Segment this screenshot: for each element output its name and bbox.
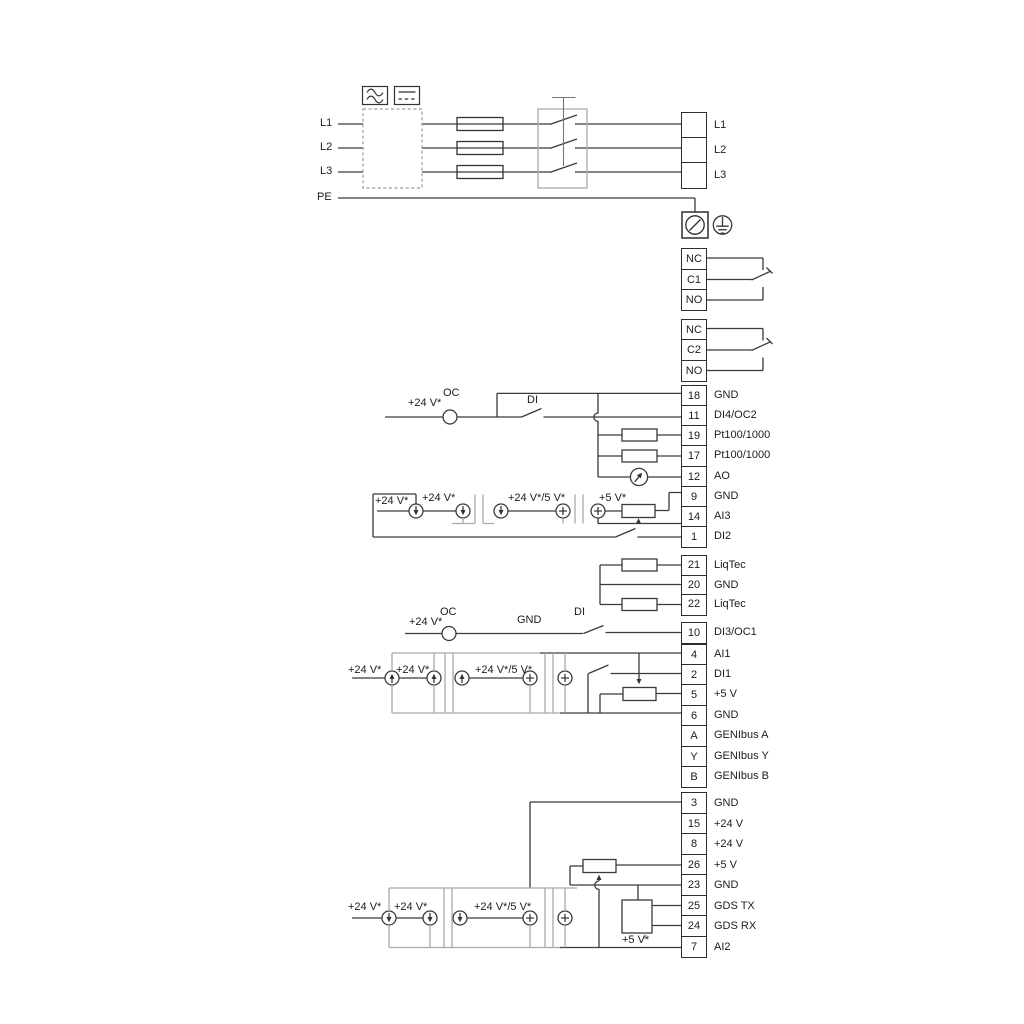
terminal-label: LiqTec bbox=[714, 555, 746, 575]
terminal-cell-12: 12 bbox=[681, 466, 707, 488]
option-brackets bbox=[392, 653, 565, 713]
resistor-icon bbox=[622, 429, 657, 441]
main-switch-linkage bbox=[552, 98, 576, 167]
terminal-cell-17: 17 bbox=[681, 445, 707, 467]
current-source-icon bbox=[455, 671, 469, 685]
open-collector-icon bbox=[442, 627, 456, 641]
wire-label-ai3-24v-1: +24 V* bbox=[375, 495, 408, 507]
terminal-cell-20: 20 bbox=[681, 575, 707, 596]
terminal-cell-18: 18 bbox=[681, 385, 707, 407]
terminal-label: GND bbox=[714, 705, 738, 725]
terminal-cell-NC: NC bbox=[681, 248, 707, 270]
terminal-cell-NO: NO bbox=[681, 360, 707, 382]
wire-label-ai2-24v5v: +24 V*/5 V* bbox=[474, 901, 531, 913]
terminal-cell-Y: Y bbox=[681, 746, 707, 768]
gds-sensor-box bbox=[622, 900, 652, 933]
bus-with-jump bbox=[594, 393, 598, 477]
wire-label-ai3-24v-2: +24 V* bbox=[422, 492, 455, 504]
wiring-diagram-canvas bbox=[0, 0, 1024, 1024]
potentiometer-icon bbox=[622, 505, 655, 518]
terminal-cell-L1 bbox=[681, 112, 707, 139]
terminal-cell-NC: NC bbox=[681, 319, 707, 341]
digital-input-3-circuit bbox=[405, 626, 681, 641]
terminal-label: L1 bbox=[714, 112, 726, 137]
voltage-source-icon bbox=[558, 911, 572, 925]
terminal-cell-C2: C2 bbox=[681, 339, 707, 361]
terminal-label: L3 bbox=[714, 162, 726, 187]
terminal-label: GND bbox=[714, 792, 738, 813]
ac-symbol-icon bbox=[363, 87, 388, 105]
current-source-icon bbox=[423, 911, 437, 925]
terminal-label: AI1 bbox=[714, 644, 731, 664]
terminal-label: DI1 bbox=[714, 664, 731, 684]
terminal-cell-23: 23 bbox=[681, 874, 707, 896]
pe-screw-terminal-icon bbox=[682, 212, 708, 238]
terminal-label: Pt100/1000 bbox=[714, 425, 770, 445]
terminal-cell-C1: C1 bbox=[681, 269, 707, 291]
wire-label-ai3-24v5v: +24 V*/5 V* bbox=[508, 492, 565, 504]
terminal-label: AI3 bbox=[714, 506, 731, 526]
terminal-cell-21: 21 bbox=[681, 555, 707, 576]
resistor-icon bbox=[622, 559, 657, 571]
terminal-cell-L3 bbox=[681, 162, 707, 189]
terminal-label: AI2 bbox=[714, 936, 731, 957]
mains-section bbox=[338, 115, 695, 212]
wire-label-oc1-oc: OC bbox=[443, 387, 460, 399]
terminal-label: GENIbus Y bbox=[714, 746, 769, 766]
terminal-label: GENIbus B bbox=[714, 766, 769, 786]
ground-icon bbox=[713, 216, 731, 234]
resistor-icon bbox=[622, 599, 657, 611]
wire-label-oc2-gnd: GND bbox=[517, 614, 541, 626]
terminal-label: DI4/OC2 bbox=[714, 405, 757, 425]
terminal-label: DI3/OC1 bbox=[714, 622, 757, 642]
wire-label-gds-5v: +5 V* bbox=[622, 934, 649, 946]
terminal-cell-24: 24 bbox=[681, 915, 707, 937]
wire-label-mains-pe: PE bbox=[317, 191, 332, 203]
current-source-icon bbox=[453, 911, 467, 925]
terminal-cell-1: 1 bbox=[681, 526, 707, 548]
di2-switch bbox=[373, 529, 681, 538]
wire-label-mains-l2: L2 bbox=[320, 141, 332, 153]
wire-label-oc2-24v: +24 V* bbox=[409, 616, 442, 628]
wiper-jump bbox=[595, 881, 599, 948]
terminal-label: GND bbox=[714, 486, 738, 506]
current-source-icon bbox=[494, 504, 508, 518]
terminal-cell-19: 19 bbox=[681, 425, 707, 447]
wire-label-oc2-oc: OC bbox=[440, 606, 457, 618]
voltage-source-icon bbox=[558, 671, 572, 685]
liqtec-circuit bbox=[600, 559, 681, 611]
terminal-label: +5 V bbox=[714, 684, 737, 704]
terminal-label: AO bbox=[714, 466, 730, 486]
wire-label-ai1-24v-1: +24 V* bbox=[348, 664, 381, 676]
terminal-cell-L2 bbox=[681, 137, 707, 164]
voltage-source-icon bbox=[556, 504, 570, 518]
terminal-cell-9: 9 bbox=[681, 486, 707, 508]
terminal-cell-11: 11 bbox=[681, 405, 707, 427]
terminal-cell-25: 25 bbox=[681, 895, 707, 917]
terminal-cell-10: 10 bbox=[681, 622, 707, 644]
terminal-cell-8: 8 bbox=[681, 833, 707, 855]
terminal-cell-B: B bbox=[681, 766, 707, 788]
wire-label-di3-di: DI bbox=[574, 606, 585, 618]
terminal-label: Pt100/1000 bbox=[714, 445, 770, 465]
open-collector-icon bbox=[443, 410, 457, 424]
terminal-cell-14: 14 bbox=[681, 506, 707, 528]
wire-label-oc1-24v: +24 V* bbox=[408, 397, 441, 409]
terminal-cell-7: 7 bbox=[681, 936, 707, 958]
potentiometer-icon bbox=[623, 688, 656, 701]
pe-wire bbox=[338, 198, 695, 212]
terminal-cell-4: 4 bbox=[681, 644, 707, 666]
wire-label-mains-l3: L3 bbox=[320, 165, 332, 177]
wire-label-ai2-24v-1: +24 V* bbox=[348, 901, 381, 913]
ai1-sensor-options bbox=[352, 653, 681, 713]
terminal-label: LiqTec bbox=[714, 594, 746, 614]
terminal-label: GND bbox=[714, 874, 738, 895]
terminal-label: GND bbox=[714, 575, 738, 595]
wiring-diagram-page: L1L2L3NCC1NONCC2NO18GND11DI4/OC219Pt100/… bbox=[0, 0, 1024, 1024]
resistor-icon bbox=[622, 450, 657, 462]
terminal-cell-15: 15 bbox=[681, 813, 707, 835]
voltage-source-icon bbox=[523, 911, 537, 925]
potentiometer-icon bbox=[583, 860, 616, 873]
current-source-icon bbox=[456, 504, 470, 518]
wire-label-mains-l1: L1 bbox=[320, 117, 332, 129]
terminal-label: L2 bbox=[714, 137, 726, 162]
terminal-label: GDS TX bbox=[714, 895, 755, 916]
wire-label-ai2-24v-2: +24 V* bbox=[394, 901, 427, 913]
terminal-cell-6: 6 bbox=[681, 705, 707, 727]
ai2-gds-circuit bbox=[352, 802, 681, 948]
terminal-cell-NO: NO bbox=[681, 289, 707, 311]
terminal-label: GND bbox=[714, 385, 738, 405]
wire-label-ai1-24v-2: +24 V* bbox=[396, 664, 429, 676]
terminal-cell-A: A bbox=[681, 725, 707, 747]
relay-1-contact bbox=[707, 258, 773, 300]
current-source-icon bbox=[382, 911, 396, 925]
wire-label-di4-di: DI bbox=[527, 394, 538, 406]
voltage-source-icon bbox=[591, 504, 605, 518]
dc-symbol-icon bbox=[395, 87, 420, 105]
wire-label-ai3-5v: +5 V* bbox=[599, 492, 626, 504]
terminal-cell-26: 26 bbox=[681, 854, 707, 876]
terminal-label: +24 V bbox=[714, 813, 743, 834]
terminal-cell-3: 3 bbox=[681, 792, 707, 814]
terminal-label: GDS RX bbox=[714, 915, 756, 936]
pt100-resistor-2 bbox=[598, 450, 681, 462]
terminal-label: GENIbus A bbox=[714, 725, 768, 745]
terminal-label: DI2 bbox=[714, 526, 731, 546]
terminal-label: +24 V bbox=[714, 833, 743, 854]
relay-2-contact bbox=[707, 329, 773, 371]
terminal-cell-22: 22 bbox=[681, 594, 707, 615]
pt100-resistor-1 bbox=[598, 429, 681, 441]
current-source-icon bbox=[409, 504, 423, 518]
filter-box bbox=[363, 109, 422, 188]
terminal-cell-2: 2 bbox=[681, 664, 707, 686]
analog-output-meter bbox=[598, 468, 681, 485]
terminal-label: +5 V bbox=[714, 854, 737, 875]
terminal-cell-5: 5 bbox=[681, 684, 707, 706]
wire-label-ai1-24v5v: +24 V*/5 V* bbox=[475, 664, 532, 676]
